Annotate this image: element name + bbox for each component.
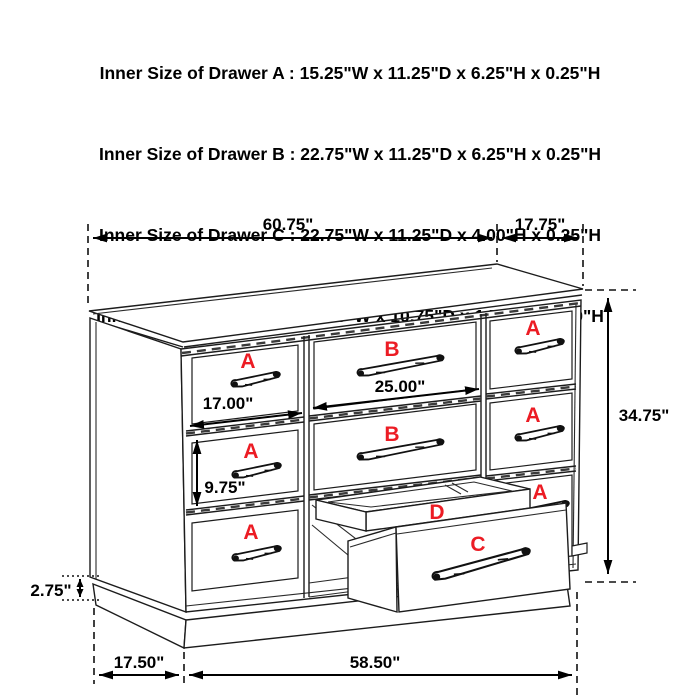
dim-bottom-width: 58.50" [350, 653, 401, 672]
cabinet-left-panel [90, 318, 186, 612]
drawer-a-bottom-left: A [192, 510, 298, 591]
dim-bottom-depth: 17.50" [114, 653, 165, 672]
dim-base-height: 2.75" [30, 581, 71, 600]
dim-drawer-a-height: 9.75" [204, 478, 245, 497]
drawer-label-a: A [243, 521, 258, 544]
dimension-height: 34.75" [585, 290, 669, 582]
dim-drawer-a-width: 17.00" [203, 394, 254, 413]
drawer-label-a: A [243, 440, 258, 463]
dim-top-width: 60.75" [263, 215, 314, 234]
dimension-base-height: 2.75" [30, 576, 100, 600]
slide-bracket [572, 543, 587, 556]
drawer-label-b: B [384, 338, 399, 361]
drawer-label-a: A [525, 404, 540, 427]
drawer-label-a: A [532, 481, 547, 504]
dim-height: 34.75" [619, 406, 670, 425]
drawer-label-c: C [470, 533, 485, 556]
dresser-line-drawing: A A A B B A A [0, 0, 700, 700]
drawer-label-a: A [525, 317, 540, 340]
drawer-label-a: A [240, 350, 255, 373]
drawer-a-middle-right: A [490, 393, 572, 470]
drawer-a-top-right: A [490, 311, 572, 389]
dim-top-depth: 17.75" [515, 215, 566, 234]
dresser-dimension-diagram: Inner Size of Drawer A : 15.25"W x 11.25… [0, 0, 700, 700]
dim-drawer-b-width: 25.00" [375, 377, 426, 396]
drawer-label-b: B [384, 423, 399, 446]
